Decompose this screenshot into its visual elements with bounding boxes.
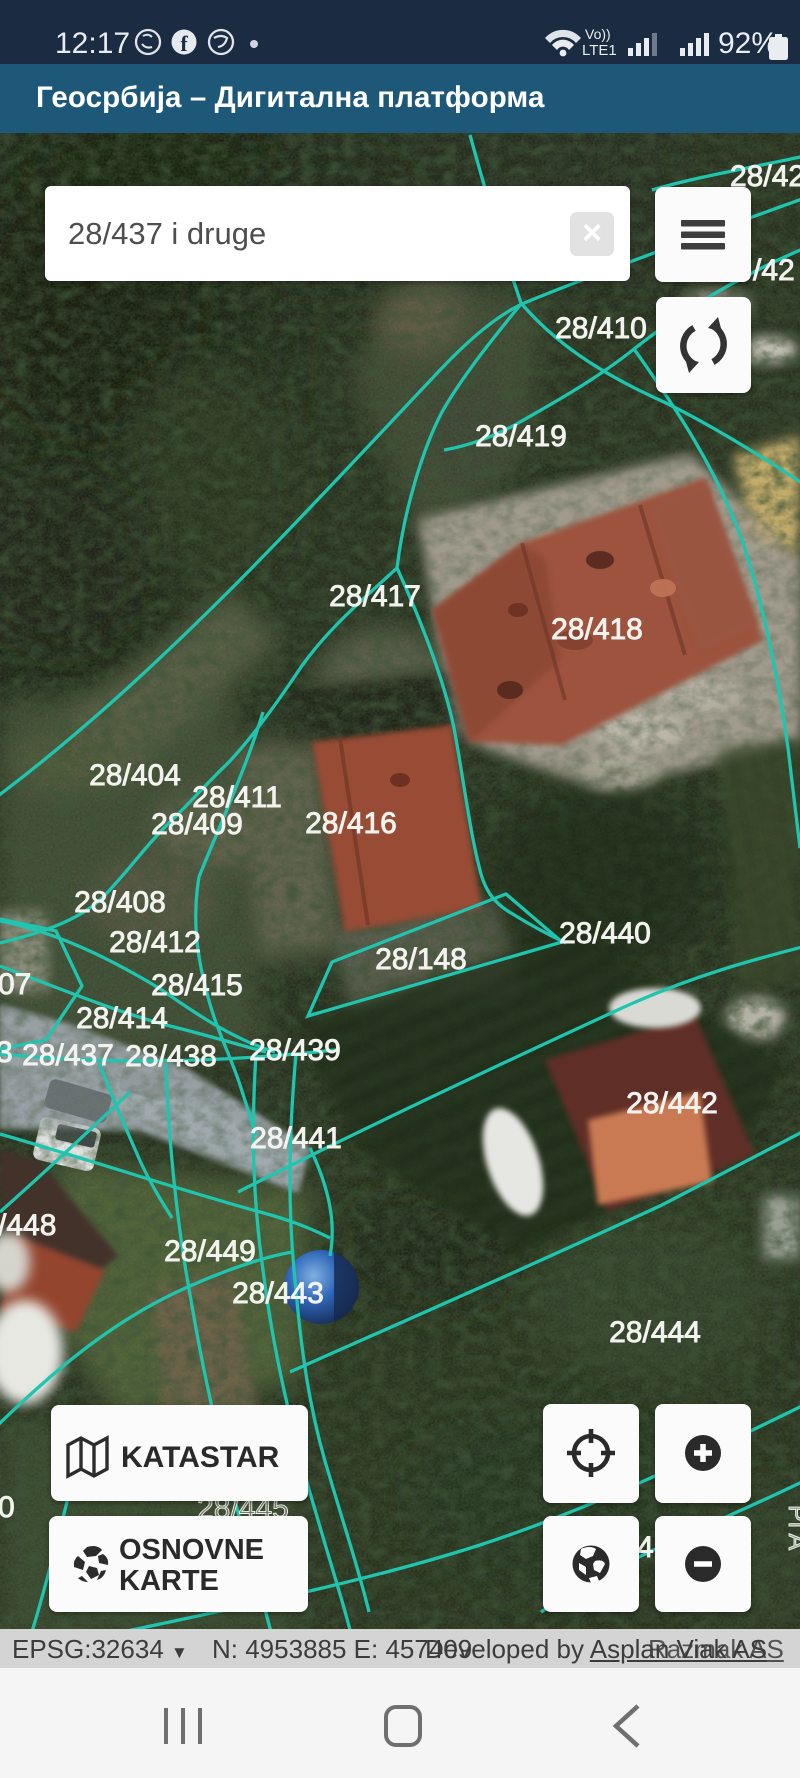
svg-text:KATASTAR: KATASTAR bbox=[121, 1441, 280, 1474]
svg-text:28/418: 28/418 bbox=[551, 613, 643, 646]
svg-text:OSNOVNE: OSNOVNE bbox=[119, 1534, 264, 1566]
svg-text:28/404: 28/404 bbox=[89, 759, 181, 792]
svg-text:/448: /448 bbox=[0, 1209, 56, 1242]
svg-text:28/444: 28/444 bbox=[609, 1316, 701, 1349]
svg-text:4: 4 bbox=[637, 1531, 654, 1564]
svg-text:28/408: 28/408 bbox=[74, 886, 166, 919]
svg-text:28/443: 28/443 bbox=[232, 1277, 324, 1310]
svg-text:28/410: 28/410 bbox=[555, 312, 647, 345]
svg-text:0: 0 bbox=[0, 1491, 15, 1524]
svg-text:/42: /42 bbox=[753, 254, 795, 287]
svg-text:28/414: 28/414 bbox=[76, 1002, 168, 1035]
svg-text:f: f bbox=[180, 31, 188, 56]
svg-text:28/409: 28/409 bbox=[151, 808, 243, 841]
svg-text:07: 07 bbox=[0, 968, 31, 1001]
svg-text:28/449: 28/449 bbox=[164, 1235, 256, 1268]
svg-text:28/419: 28/419 bbox=[475, 420, 567, 453]
svg-text:Vo)): Vo)) bbox=[585, 26, 611, 42]
svg-text:28/440: 28/440 bbox=[559, 917, 651, 950]
svg-text:РГА: РГА bbox=[783, 1505, 800, 1551]
svg-text:28/438: 28/438 bbox=[125, 1040, 217, 1073]
svg-text:28/412: 28/412 bbox=[109, 926, 201, 959]
svg-text:28/442: 28/442 bbox=[626, 1087, 718, 1120]
svg-text:28/441: 28/441 bbox=[250, 1122, 342, 1155]
svg-text:LTE1: LTE1 bbox=[582, 42, 617, 59]
svg-text:28/439: 28/439 bbox=[249, 1034, 341, 1067]
svg-text:3: 3 bbox=[0, 1036, 13, 1069]
svg-text:28/437: 28/437 bbox=[22, 1039, 114, 1072]
svg-text:28/148: 28/148 bbox=[375, 943, 467, 976]
svg-text:28/416: 28/416 bbox=[305, 807, 397, 840]
svg-text:12:17: 12:17 bbox=[55, 27, 130, 60]
svg-text:28/415: 28/415 bbox=[151, 969, 243, 1002]
svg-text:KARTE: KARTE bbox=[119, 1565, 219, 1597]
svg-text:28/417: 28/417 bbox=[329, 580, 421, 613]
